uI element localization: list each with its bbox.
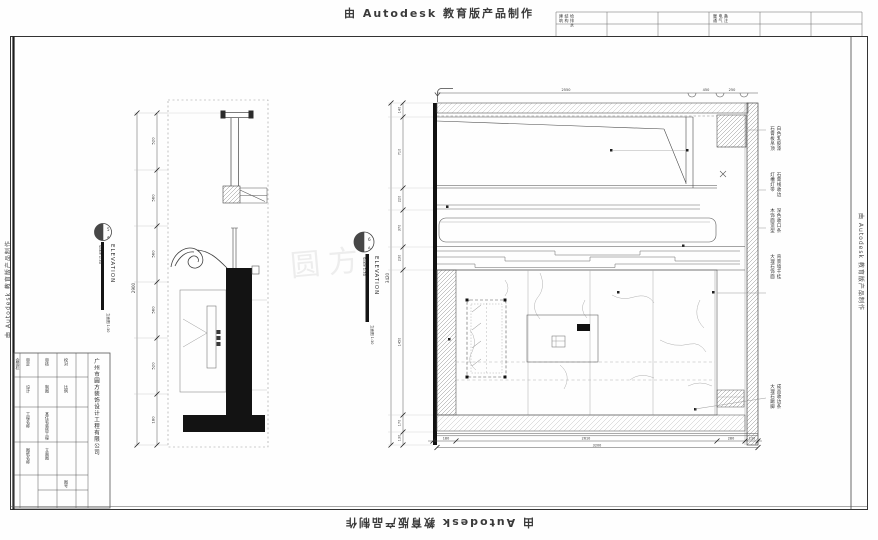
header-text: 给排水 [570, 14, 574, 28]
annotation-group: 大理石饰面 背景墙干挂 [769, 254, 780, 279]
dim-label: 250 [729, 88, 736, 92]
dim-label: 280 [728, 437, 734, 441]
title-block-cell: 图号 [64, 480, 68, 488]
dim-label: 370 [398, 225, 402, 231]
dim-label: 520 [151, 137, 156, 145]
title-block-cell: 校对 [64, 358, 68, 366]
dim-label: 560 [151, 250, 156, 258]
title-block-cell: 某住宅装饰工程 [45, 412, 49, 440]
left-elevation-drawing: 2900 520 560 560 560 520 180 [131, 100, 268, 448]
annotation-text: 成品收边条 [776, 384, 781, 409]
right-elevation-drawing: 3420 140 710 220 370 230 1450 170 130 25… [385, 88, 766, 450]
annotation-text: 石膏板吊顶 [769, 126, 774, 151]
company-name: 广州市圆方装饰设计工程有限公司 [92, 358, 100, 504]
dim-label: 710 [398, 149, 402, 155]
title-block-cell: 立面图 [45, 448, 49, 460]
dim-label: 180 [443, 437, 449, 441]
title-block-cell: 设计 [26, 385, 30, 393]
cad-sheet: 由 Autodesk 教育版产品制作 由 Autodesk 教育版产品制作 由 … [0, 0, 878, 540]
title-note: 立面图 1:30 [106, 313, 111, 332]
left-elevation-title: 5 A ELEVATION Scale 1:30 立面图 1:30 [95, 224, 116, 333]
header-text: 结构 [565, 14, 569, 28]
title-number: 6 [368, 237, 371, 242]
title-block-cell: 比例 [64, 385, 68, 393]
title-name: ELEVATION [373, 256, 379, 295]
drawing-canvas: 5 A ELEVATION Scale 1:30 立面图 1:30 6 A EL… [0, 0, 878, 540]
annotation-text: 石膏线收边 [776, 172, 781, 197]
dim-label: 520 [151, 362, 156, 370]
title-block-cell: 制图 [45, 385, 49, 393]
title-block-cell: 图纸名称 [26, 448, 30, 464]
annotation-group: 灯槽灯带 石膏线收边 [769, 172, 780, 197]
title-block-cell: 会签栏 [16, 358, 20, 370]
title-name: ELEVATION [109, 244, 115, 283]
header-text: 建筑 [559, 14, 563, 28]
header-cell-services: 暖通 电气 备注 [713, 14, 728, 23]
title-scale: Scale 1:30 [362, 257, 366, 277]
dim-total: 2900 [131, 282, 136, 293]
dim-total: 3200 [593, 443, 602, 447]
dim-label: 230 [398, 255, 402, 261]
title-block-cell: 工程名称 [26, 412, 30, 428]
dim-total: 3420 [385, 272, 390, 283]
dim-label: 450 [703, 88, 710, 92]
annotation-text: 深色收口条 [776, 208, 781, 233]
dim-label: 560 [151, 194, 156, 202]
annotation-text: 白色乳胶漆 [776, 126, 781, 151]
annotation-group: 木饰面造型 深色收口条 [769, 208, 780, 233]
dim-label: 2610 [582, 437, 591, 441]
title-block-cell: 审核 [45, 358, 49, 366]
annotation-text: 灯槽灯带 [769, 172, 774, 197]
title-number: 5 [107, 227, 110, 232]
title-scale: Scale 1:30 [98, 245, 102, 265]
dim-label: 560 [151, 306, 156, 314]
annotation-text: 木饰面造型 [769, 208, 774, 233]
dim-label: 180 [151, 416, 156, 424]
annotation-text: 背景墙干挂 [776, 254, 781, 279]
dim-label: 220 [398, 196, 402, 202]
annotation-group: 大理石踢脚 成品收边条 [769, 384, 780, 409]
header-text: 备注 [724, 14, 728, 23]
dim-label: 130 [749, 437, 755, 441]
dim-label: 130 [398, 435, 402, 441]
annotation-text: 大理石踢脚 [769, 384, 774, 409]
title-block-cell: 审定 [26, 358, 30, 366]
header-cell-disciplines: 建筑 结构 给排水 [559, 14, 574, 28]
right-elevation-title: 6 A ELEVATION Scale 1:30 立面图 1:30 [354, 232, 379, 344]
dim-label: 140 [398, 107, 402, 113]
annotation-group: 石膏板吊顶 白色乳胶漆 [769, 126, 780, 151]
header-text: 电气 [719, 14, 723, 23]
title-note: 立面图 1:30 [370, 325, 375, 344]
dim-label: 1450 [398, 338, 402, 347]
annotation-text: 大理石饰面 [769, 254, 774, 279]
dim-label: 170 [398, 420, 402, 426]
dim-label: 2550 [562, 88, 571, 92]
header-text: 暖通 [713, 14, 717, 23]
header-strip-grid [556, 12, 862, 36]
